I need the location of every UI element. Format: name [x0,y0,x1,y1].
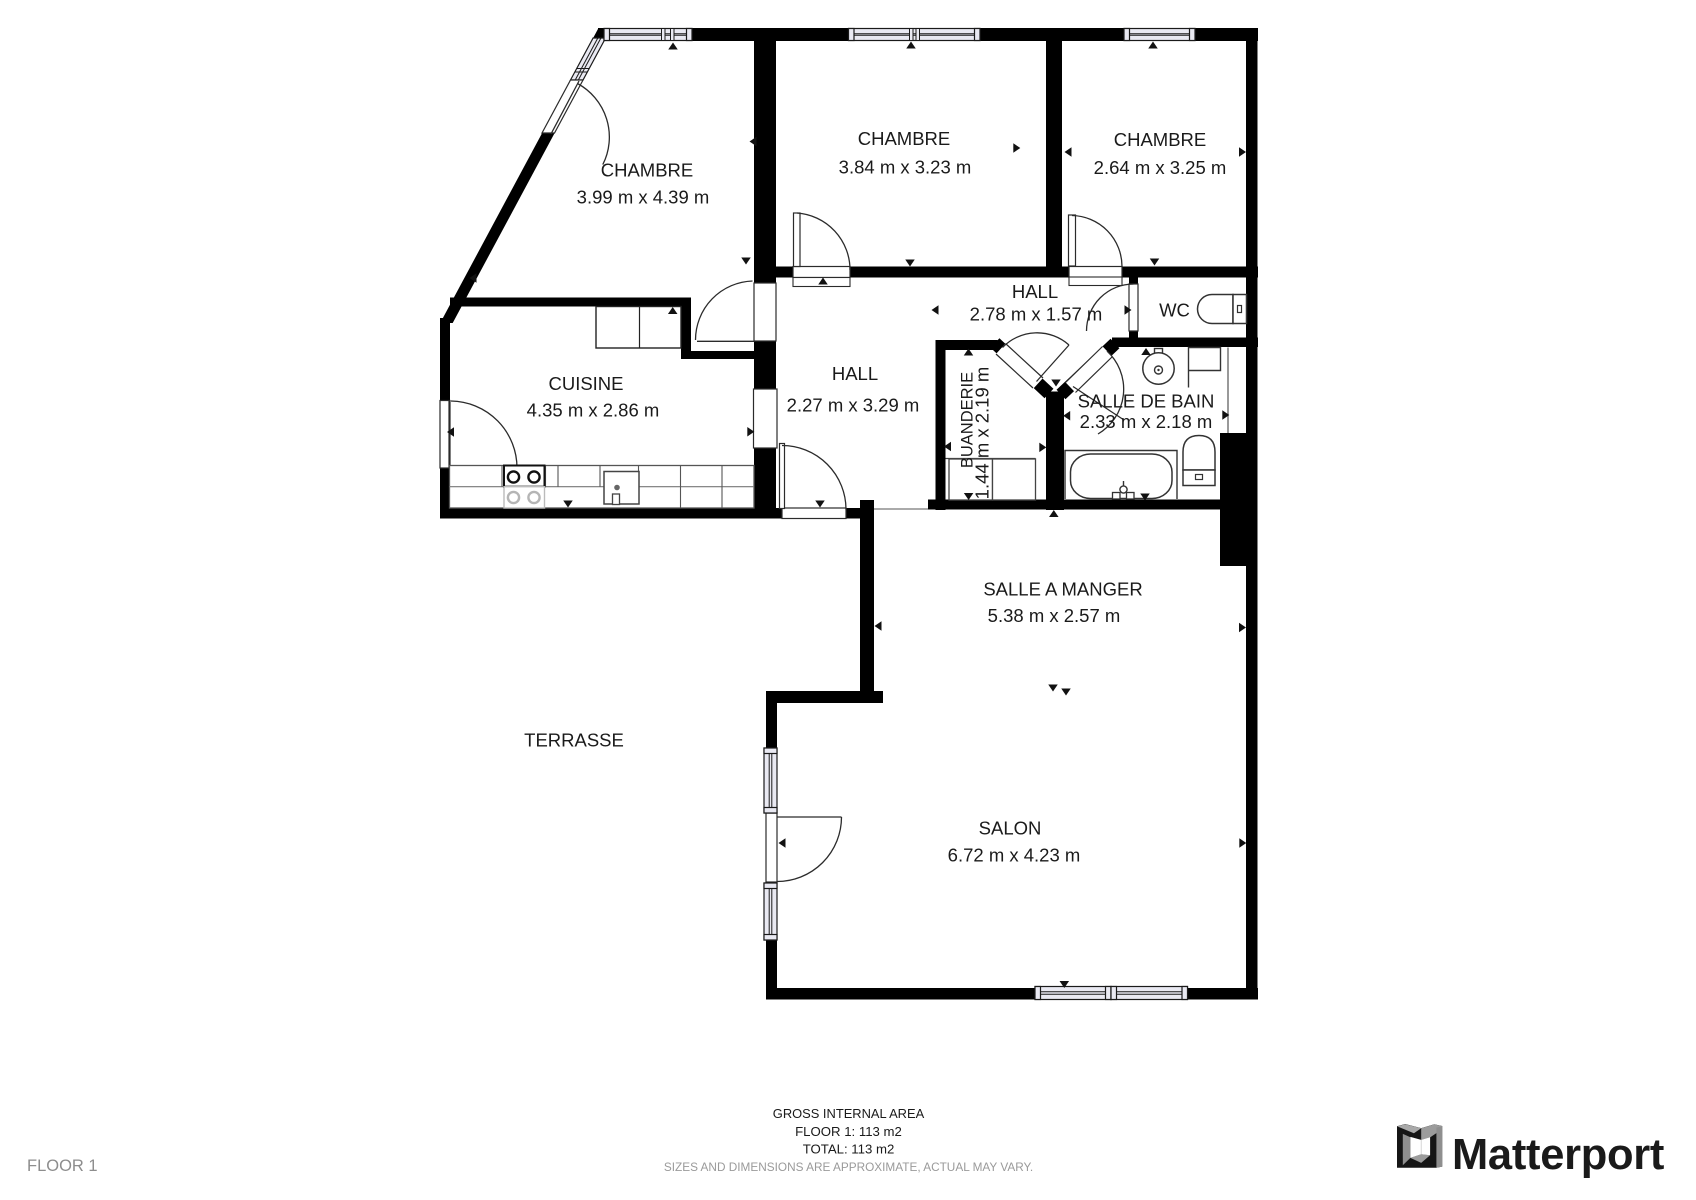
svg-text:WC: WC [1159,300,1190,321]
svg-text:2.27 m x 3.29 m: 2.27 m x 3.29 m [787,395,920,416]
svg-text:5.38 m x 2.57 m: 5.38 m x 2.57 m [988,605,1121,626]
svg-text:SIZES AND DIMENSIONS ARE APPRO: SIZES AND DIMENSIONS ARE APPROXIMATE, AC… [664,1160,1033,1174]
svg-text:Matterport: Matterport [1452,1131,1664,1179]
svg-text:FLOOR 1: 113 m2: FLOOR 1: 113 m2 [795,1124,902,1139]
svg-text:2.33 m x 2.18 m: 2.33 m x 2.18 m [1080,411,1213,432]
svg-text:GROSS INTERNAL AREA: GROSS INTERNAL AREA [773,1106,925,1121]
svg-text:SALLE A MANGER: SALLE A MANGER [983,579,1142,600]
svg-text:3.84 m x 3.23 m: 3.84 m x 3.23 m [839,157,972,178]
svg-text:CHAMBRE: CHAMBRE [1114,129,1207,150]
svg-text:4.35 m x 2.86 m: 4.35 m x 2.86 m [527,400,660,421]
svg-text:6.72 m x 4.23 m: 6.72 m x 4.23 m [948,845,1081,866]
svg-text:TOTAL: 113 m2: TOTAL: 113 m2 [803,1142,895,1157]
svg-text:CHAMBRE: CHAMBRE [858,128,951,149]
svg-text:FLOOR 1: FLOOR 1 [27,1157,98,1175]
svg-text:SALON: SALON [979,818,1042,839]
svg-text:1.44 m x 2.19 m: 1.44 m x 2.19 m [972,367,993,500]
svg-text:HALL: HALL [832,363,878,384]
svg-text:HALL: HALL [1012,281,1058,302]
svg-text:CUISINE: CUISINE [548,373,623,394]
svg-text:CHAMBRE: CHAMBRE [601,160,694,181]
svg-text:2.78 m x 1.57 m: 2.78 m x 1.57 m [970,304,1103,325]
svg-text:TERRASSE: TERRASSE [524,730,624,751]
svg-text:3.99 m x 4.39 m: 3.99 m x 4.39 m [577,187,710,208]
svg-text:SALLE DE BAIN: SALLE DE BAIN [1078,391,1215,412]
svg-text:2.64 m x 3.25 m: 2.64 m x 3.25 m [1094,157,1227,178]
